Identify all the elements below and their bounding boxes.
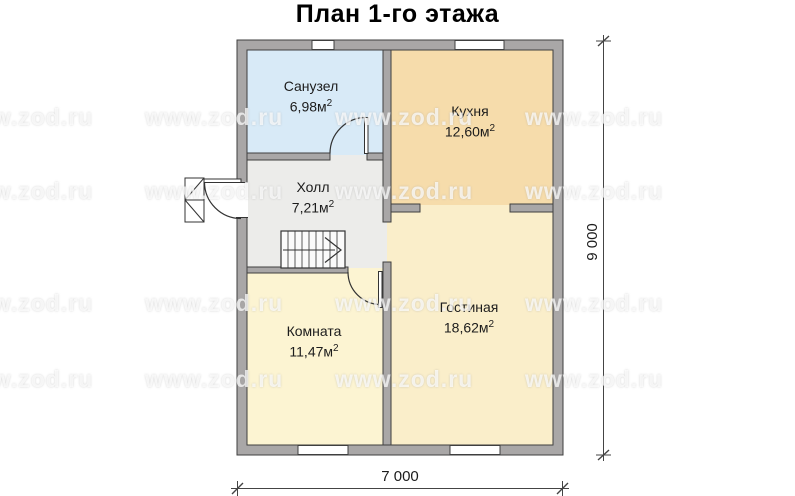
- window-bathroom: [312, 41, 334, 50]
- room-area: 12,60м2: [445, 120, 495, 141]
- room-name: Комната: [287, 323, 342, 340]
- room-name: Гостиная: [440, 299, 499, 316]
- wall-kitchen-living-right: [510, 204, 553, 212]
- room-label-kitchen: Кухня 12,60м2: [445, 103, 495, 141]
- room-name: Холл: [292, 179, 334, 196]
- window-kitchen: [455, 41, 504, 50]
- room-label-living: Гостиная 18,62м2: [440, 299, 499, 337]
- room-name: Санузел: [284, 78, 339, 95]
- wall-vertical-upper: [383, 50, 391, 222]
- room-area: 7,21м2: [292, 196, 334, 217]
- wall-vertical-lower: [383, 262, 391, 445]
- wall-kitchen-living-left: [391, 204, 420, 212]
- wall-bathroom-hall-right: [367, 153, 383, 160]
- komnata-door: [348, 272, 382, 308]
- wall-bathroom-hall-left: [247, 153, 330, 160]
- floorplan-drawing: [0, 0, 795, 496]
- room-area: 11,47м2: [287, 340, 342, 361]
- porch-steps: [185, 178, 204, 222]
- floorplan-page: План 1-го этажа: [0, 0, 795, 496]
- dimension-label-vertical: 9 000: [578, 213, 606, 271]
- window-komnata: [298, 446, 348, 455]
- room-name: Кухня: [445, 103, 495, 120]
- room-label-bathroom: Санузел 6,98м2: [284, 78, 339, 116]
- room-label-komnata: Комната 11,47м2: [287, 323, 342, 361]
- dimension-label-horizontal: 7 000: [355, 468, 445, 485]
- entry-opening: [236, 183, 248, 218]
- room-area: 18,62м2: [440, 316, 499, 337]
- entry-door: [204, 179, 241, 219]
- bathroom-door: [330, 118, 368, 154]
- stairs: [281, 231, 345, 268]
- room-area: 6,98м2: [284, 95, 339, 116]
- room-label-hall: Холл 7,21м2: [292, 179, 334, 217]
- window-living: [450, 446, 500, 455]
